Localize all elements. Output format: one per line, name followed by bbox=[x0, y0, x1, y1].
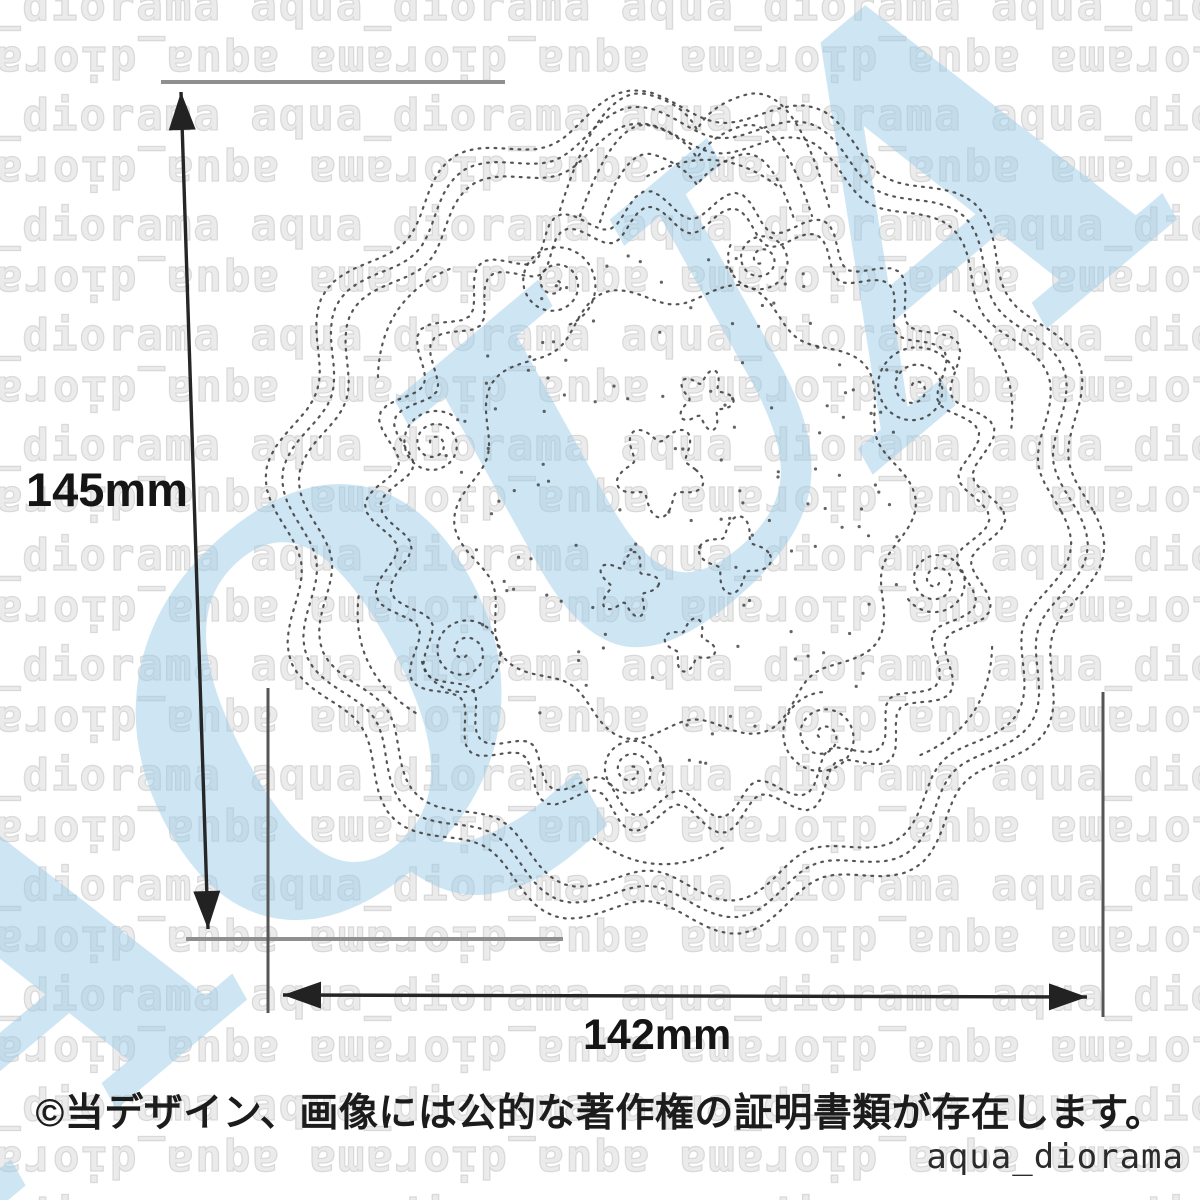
brand-signature: aqua_diorama bbox=[926, 1137, 1184, 1177]
height-dimension-label: 145mm bbox=[26, 462, 188, 517]
dimension-arrowhead bbox=[193, 891, 220, 929]
width-dimension-label: 142mm bbox=[583, 1011, 731, 1060]
dimension-arrowhead bbox=[283, 982, 321, 1009]
dimension-arrowhead bbox=[169, 92, 196, 130]
measure-lines bbox=[169, 92, 1087, 1010]
product-image: aqua_diorama aqua_diorama aqua_diorama a… bbox=[0, 0, 1200, 1200]
copyright-notice: ©当デザイン、画像には公的な著作権の証明書類が存在します。 bbox=[0, 1082, 1200, 1138]
extension-lines bbox=[161, 82, 1103, 1017]
dimension-arrowhead bbox=[1049, 983, 1087, 1010]
